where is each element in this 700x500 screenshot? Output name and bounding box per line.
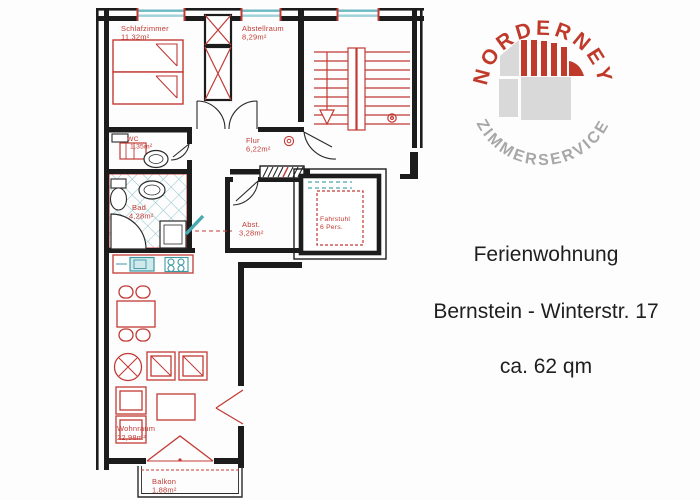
hob-icon — [165, 258, 188, 272]
svg-text:6,22m²: 6,22m² — [246, 145, 271, 154]
window-icons — [137, 8, 380, 21]
window-icon — [241, 8, 282, 21]
room-label-fahrstuhl: Fahrstuhl — [320, 216, 350, 223]
svg-text:1,35m²: 1,35m² — [130, 144, 153, 151]
logo-house-icon — [499, 40, 584, 120]
caption-line-ferienwohnung: Ferienwohnung — [398, 244, 694, 265]
room-label-wc: WC — [127, 136, 139, 143]
svg-text:11,32m²: 11,32m² — [121, 33, 150, 42]
entrance-door-hatch — [260, 136, 304, 178]
elevator-icon — [294, 169, 386, 259]
caption-line-size: ca. 62 qm — [398, 356, 694, 377]
svg-text:1,88m²: 1,88m² — [152, 486, 177, 495]
caption-line-address: Bernstein - Winterstr. 17 — [398, 301, 694, 322]
bed-icons — [113, 40, 183, 104]
scanned-floorplan-page: Schlafzimmer 11,32m² Abstellraum 8,29m² … — [0, 0, 700, 500]
stairs-icon — [314, 48, 410, 130]
logo-arc-bottom-text: ZIMMERSERVICE — [473, 117, 614, 169]
svg-text:3,28m²: 3,28m² — [239, 229, 264, 238]
window-icon — [337, 8, 380, 21]
svg-text:6 Pers.: 6 Pers. — [320, 224, 343, 231]
svg-text:4,28m²: 4,28m² — [129, 212, 154, 221]
kitchenette-icons — [113, 255, 193, 273]
vent-symbol-icon — [284, 136, 293, 145]
svg-text:8,29m²: 8,29m² — [242, 33, 267, 42]
svg-text:22,98m²: 22,98m² — [117, 433, 146, 442]
window-icon — [137, 8, 186, 21]
wc-fixture-icons — [112, 134, 168, 168]
shaft-icon — [205, 15, 231, 100]
room-label-wohnraum: Wohnraum — [117, 424, 155, 433]
zimmerservice-logo: NORDERNEY ZIMMERSERVICE — [438, 4, 650, 174]
